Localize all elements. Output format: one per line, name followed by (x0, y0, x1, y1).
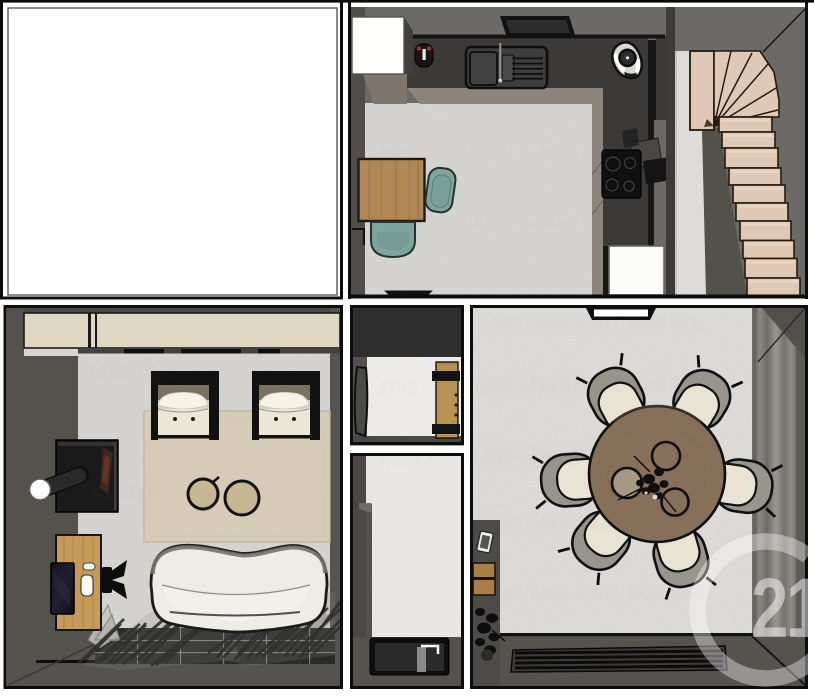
svg-text:7941 Mail A941 Mail M1: 7941 Mail A941 Mail M1 (480, 583, 699, 605)
svg-text:7941 Mail A941 Mail M1: 7941 Mail A941 Mail M1 (480, 373, 699, 395)
svg-text:41 Mail: 41 Mail (90, 483, 157, 505)
svg-text:Mail 7941 Mail A-Mail: Mail 7941 Mail A-Mail (380, 213, 578, 235)
svg-text:21: 21 (751, 562, 814, 656)
svg-text:Mail 7941: Mail 7941 (90, 363, 179, 385)
svg-text:7941 Mail A941 Mail M1: 7941 Mail A941 Mail M1 (480, 513, 699, 535)
svg-text:7941 Mail A941 Mail M1: 7941 Mail A941 Mail M1 (480, 443, 699, 465)
svg-text:7941 Mail A941 Mail M1: 7941 Mail A941 Mail M1 (480, 313, 699, 335)
svg-text:Mail 7941 Mail A-Mail: Mail 7941 Mail A-Mail (380, 143, 578, 165)
